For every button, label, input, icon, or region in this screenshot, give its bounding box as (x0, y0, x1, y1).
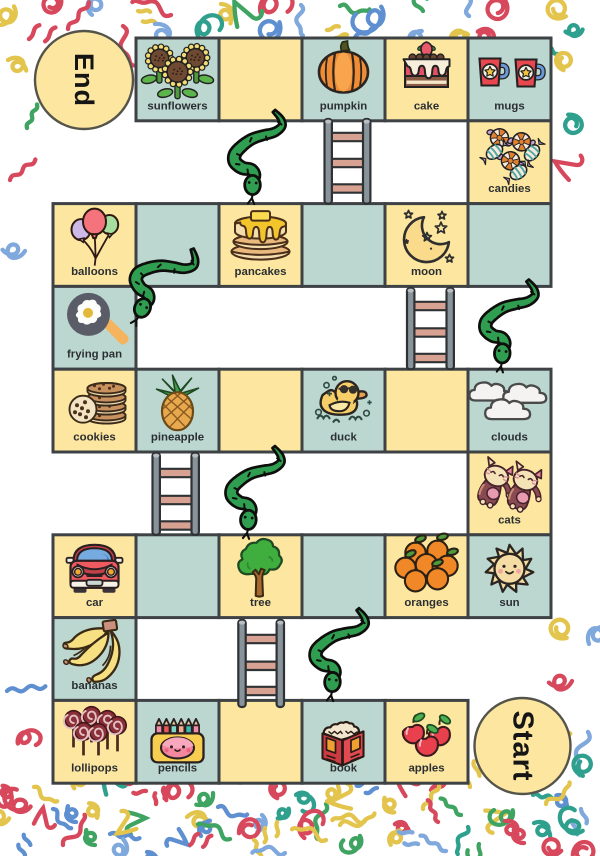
svg-text:pineapple: pineapple (151, 432, 204, 444)
svg-text:pencils: pencils (158, 763, 197, 775)
svg-text:cats: cats (498, 514, 521, 526)
svg-text:apples: apples (408, 763, 444, 775)
svg-text:oranges: oranges (404, 597, 448, 609)
svg-text:mugs: mugs (494, 100, 524, 112)
svg-text:car: car (86, 597, 104, 609)
svg-text:moon: moon (411, 266, 442, 278)
svg-text:duck: duck (330, 432, 357, 444)
svg-text:frying pan: frying pan (67, 349, 122, 361)
svg-text:End: End (69, 53, 99, 107)
svg-text:lollipops: lollipops (71, 763, 118, 775)
svg-text:pumpkin: pumpkin (320, 100, 368, 112)
svg-text:bananas: bananas (71, 680, 117, 692)
svg-text:tree: tree (250, 597, 271, 609)
svg-text:sun: sun (499, 597, 519, 609)
svg-text:cake: cake (414, 100, 439, 112)
svg-text:candies: candies (488, 183, 530, 195)
svg-text:clouds: clouds (491, 432, 528, 444)
svg-text:cookies: cookies (73, 432, 115, 444)
svg-text:sunflowers: sunflowers (147, 100, 207, 112)
svg-text:balloons: balloons (71, 266, 118, 278)
svg-text:pancakes: pancakes (235, 266, 287, 278)
svg-text:Start: Start (507, 710, 539, 781)
svg-text:book: book (330, 763, 358, 775)
